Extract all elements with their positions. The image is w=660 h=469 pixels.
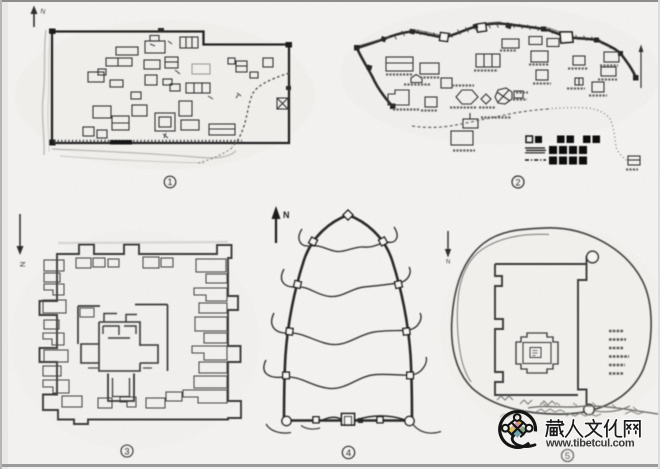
svg-text:5: 5: [565, 451, 570, 462]
svg-text:1: 1: [167, 177, 172, 187]
svg-text:4: 4: [346, 448, 351, 459]
svg-text:3: 3: [124, 446, 129, 456]
svg-text:N: N: [446, 260, 450, 266]
svg-text:N: N: [283, 210, 290, 220]
svg-text:www.tibetcul.com: www.tibetcul.com: [545, 438, 635, 450]
svg-text:N: N: [18, 262, 27, 267]
svg-text:2: 2: [515, 177, 520, 187]
